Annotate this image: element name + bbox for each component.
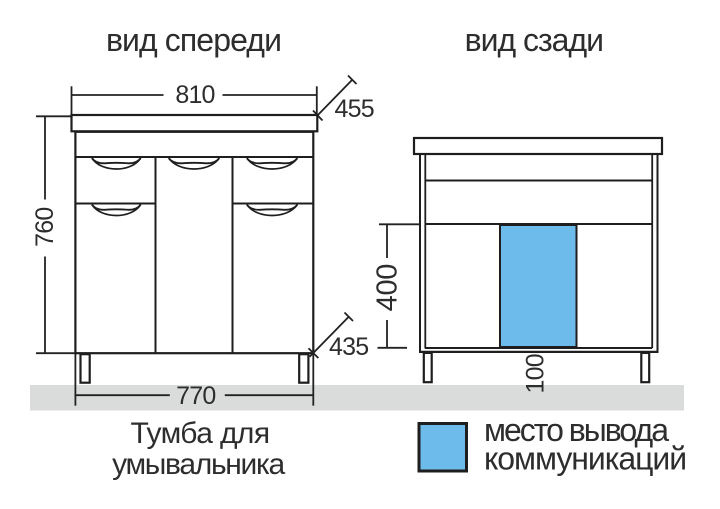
svg-text:умывальника: умывальника [112, 448, 285, 481]
svg-text:400: 400 [371, 264, 403, 312]
svg-text:вид спереди: вид спереди [106, 22, 281, 58]
svg-text:коммуникаций: коммуникаций [484, 441, 686, 477]
svg-text:вид сзади: вид сзади [465, 22, 603, 58]
svg-text:760: 760 [31, 208, 59, 247]
svg-text:Тумба для: Тумба для [131, 417, 270, 450]
svg-text:100: 100 [522, 354, 550, 393]
svg-text:435: 435 [329, 333, 368, 361]
svg-text:810: 810 [175, 81, 214, 109]
svg-text:455: 455 [335, 95, 374, 123]
svg-text:770: 770 [176, 382, 215, 410]
